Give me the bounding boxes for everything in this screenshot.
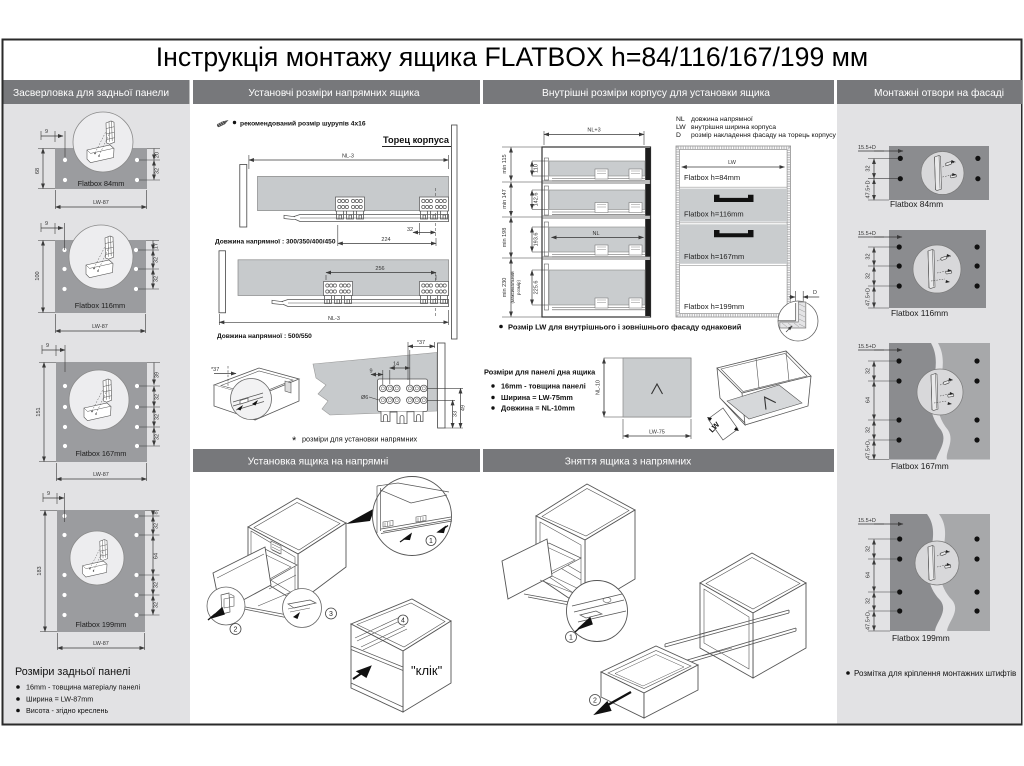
svg-text:32: 32 — [866, 368, 872, 374]
svg-text:39: 39 — [155, 372, 161, 378]
svg-text:32: 32 — [154, 602, 160, 608]
svg-text:32: 32 — [154, 276, 160, 282]
svg-text:32: 32 — [155, 414, 161, 420]
svg-text:Інструкція монтажу ящика FLATB: Інструкція монтажу ящика FLATBOX h=84/11… — [156, 42, 868, 72]
svg-text:183: 183 — [37, 566, 43, 575]
svg-text:193.6: 193.6 — [534, 233, 540, 247]
svg-text:3: 3 — [329, 611, 333, 618]
svg-text:14: 14 — [393, 362, 399, 368]
svg-text:9: 9 — [369, 369, 372, 375]
svg-text:LW-87: LW-87 — [93, 641, 109, 647]
svg-text:20: 20 — [155, 152, 161, 158]
svg-text:NL-3: NL-3 — [328, 316, 340, 322]
svg-text:47.5+D: 47.5+D — [866, 441, 872, 459]
svg-text:47.5+D: 47.5+D — [866, 288, 872, 306]
svg-text:32: 32 — [155, 434, 161, 440]
svg-text:32: 32 — [866, 253, 872, 259]
svg-text:47.5+D: 47.5+D — [866, 181, 872, 199]
svg-text:розмір): розмір) — [516, 279, 521, 295]
svg-text:min 230: min 230 — [502, 278, 508, 298]
svg-text:Flatbox h=116mm: Flatbox h=116mm — [684, 210, 744, 219]
svg-text:Розмір LW для внутрішнього і з: Розмір LW для внутрішнього і зовнішнього… — [508, 323, 742, 332]
svg-text:9: 9 — [47, 491, 50, 497]
svg-text:NL: NL — [676, 116, 685, 123]
svg-text:Flatbox 84mm: Flatbox 84mm — [78, 179, 125, 188]
svg-text:Довжина напрямної : 500/550: Довжина напрямної : 500/550 — [217, 333, 312, 340]
svg-text:2: 2 — [234, 627, 238, 634]
svg-text:68: 68 — [35, 168, 41, 174]
svg-text:min 198: min 198 — [502, 228, 508, 248]
svg-text:64: 64 — [154, 553, 160, 559]
svg-text:Довжина напрямної : 300/350/4: Довжина напрямної : 300/350/400/450 — [215, 239, 336, 246]
svg-text:Ширина = LW-75mm: Ширина = LW-75mm — [501, 393, 573, 402]
svg-text:Монтажні отвори на фасаді: Монтажні отвори на фасаді — [874, 87, 1004, 99]
svg-text:Засверловка для задньої панели: Засверловка для задньої панели — [13, 88, 169, 99]
svg-text:Внутрішні розміри корпусу для: Внутрішні розміри корпусу для установки … — [542, 88, 770, 99]
svg-text:LW-75: LW-75 — [649, 430, 665, 436]
svg-text:Flatbox 116mm: Flatbox 116mm — [75, 301, 125, 310]
svg-text:довжина напрямної: довжина напрямної — [691, 116, 753, 123]
svg-text:32: 32 — [154, 582, 160, 588]
svg-text:NL+3: NL+3 — [587, 128, 600, 134]
svg-text:32: 32 — [866, 273, 872, 279]
svg-text:32: 32 — [866, 546, 872, 552]
svg-text:внутрішня ширина корпуса: внутрішня ширина корпуса — [691, 123, 776, 131]
svg-text:225.6: 225.6 — [534, 281, 540, 295]
svg-text:Висота - згідно креслень: Висота - згідно креслень — [26, 706, 108, 715]
svg-text:Flatbox 199mm: Flatbox 199mm — [892, 633, 950, 643]
svg-text:16mm - товщина матеріалу панел: 16mm - товщина матеріалу панелі — [26, 683, 140, 692]
svg-text:32: 32 — [154, 523, 160, 529]
svg-text:15.5+D: 15.5+D — [858, 518, 876, 524]
svg-text:NL-10: NL-10 — [596, 380, 602, 395]
svg-text:8: 8 — [154, 511, 160, 514]
svg-text:32: 32 — [407, 227, 413, 233]
svg-text:32: 32 — [866, 165, 872, 171]
svg-text:9: 9 — [46, 343, 49, 349]
svg-text:Flatbox h=84mm: Flatbox h=84mm — [684, 173, 740, 182]
svg-text:1: 1 — [569, 635, 573, 642]
svg-text:рекомендований розмір шурупів: рекомендований розмір шурупів 4x16 — [240, 120, 366, 128]
svg-text:17: 17 — [154, 243, 160, 249]
svg-text:2: 2 — [593, 698, 597, 705]
svg-text:NL: NL — [592, 231, 599, 237]
svg-text:LW-87: LW-87 — [93, 200, 109, 206]
svg-text:Flatbox h=199mm: Flatbox h=199mm — [684, 302, 744, 311]
svg-text:256: 256 — [375, 266, 384, 272]
svg-text:15.5+D: 15.5+D — [858, 344, 876, 350]
svg-text:розмір накладення фасаду на то: розмір накладення фасаду на торець корпу… — [691, 131, 837, 139]
svg-text:LW: LW — [676, 124, 686, 131]
svg-text:Flatbox h=167mm: Flatbox h=167mm — [684, 252, 744, 261]
svg-text:розміри для установки напрямни: розміри для установки напрямних — [302, 435, 418, 444]
svg-text:Ø6: Ø6 — [361, 395, 368, 401]
svg-text:LW: LW — [728, 160, 737, 166]
svg-text:110: 110 — [534, 164, 540, 173]
svg-text:LW-87: LW-87 — [92, 324, 108, 330]
svg-text:min 115: min 115 — [502, 154, 508, 173]
svg-text:(максимальний: (максимальний — [509, 271, 515, 303]
svg-text:*37: *37 — [211, 367, 219, 373]
svg-text:100: 100 — [35, 271, 41, 280]
svg-text:9: 9 — [45, 129, 48, 135]
svg-text:151: 151 — [36, 407, 42, 416]
svg-text:64: 64 — [866, 397, 872, 403]
svg-text:Розміри для панелі дна ящика: Розміри для панелі дна ящика — [484, 368, 596, 377]
svg-text:Flatbox 199mm: Flatbox 199mm — [76, 620, 127, 629]
svg-text:15.5+D: 15.5+D — [858, 231, 876, 237]
svg-text:min 147: min 147 — [502, 189, 508, 209]
svg-text:Розміри задньої панелі: Розміри задньої панелі — [15, 666, 130, 678]
svg-text:Довжина = NL-10mm: Довжина = NL-10mm — [501, 404, 575, 413]
svg-text:Установчі розміри напрямних ящ: Установчі розміри напрямних ящика — [248, 88, 419, 99]
svg-text:Flatbox 84mm: Flatbox 84mm — [890, 199, 943, 209]
svg-text:142.6: 142.6 — [534, 193, 540, 207]
svg-text:33: 33 — [453, 411, 459, 417]
svg-text:47.5+D: 47.5+D — [866, 612, 872, 630]
svg-text:15.5+D: 15.5+D — [858, 145, 876, 151]
svg-text:"клік": "клік" — [411, 663, 443, 678]
svg-text:*37: *37 — [417, 340, 425, 346]
svg-text:Торец корпуса: Торец корпуса — [383, 135, 450, 145]
svg-text:1: 1 — [429, 538, 433, 545]
svg-text:32: 32 — [155, 168, 161, 174]
svg-text:Flatbox 116mm: Flatbox 116mm — [891, 308, 948, 318]
svg-text:224: 224 — [381, 237, 390, 243]
svg-text:32: 32 — [155, 394, 161, 400]
svg-text:D: D — [676, 132, 681, 139]
svg-text:*: * — [292, 435, 297, 447]
svg-text:9: 9 — [45, 221, 48, 227]
svg-text:D: D — [813, 290, 817, 296]
svg-text:Ширина = LW-87mm: Ширина = LW-87mm — [26, 695, 93, 704]
svg-text:Flatbox 167mm: Flatbox 167mm — [76, 449, 127, 458]
svg-text:32: 32 — [154, 257, 160, 263]
svg-text:49: 49 — [461, 405, 467, 411]
svg-text:16mm - товщина панелі: 16mm - товщина панелі — [501, 382, 586, 391]
svg-text:LW-87: LW-87 — [93, 472, 109, 478]
svg-text:64: 64 — [866, 572, 872, 578]
svg-text:32: 32 — [866, 427, 872, 433]
svg-text:Flatbox 167mm: Flatbox 167mm — [891, 461, 949, 471]
svg-text:Зняття ящика з напрямних: Зняття ящика з напрямних — [565, 457, 692, 468]
svg-text:Розмітка для кріплення монтажн: Розмітка для кріплення монтажних штифтів — [854, 669, 1016, 678]
svg-text:32: 32 — [866, 598, 872, 604]
svg-text:Установка ящика на напрямні: Установка ящика на напрямні — [248, 457, 389, 468]
svg-text:4: 4 — [401, 618, 405, 625]
svg-text:NL-3: NL-3 — [342, 154, 354, 160]
